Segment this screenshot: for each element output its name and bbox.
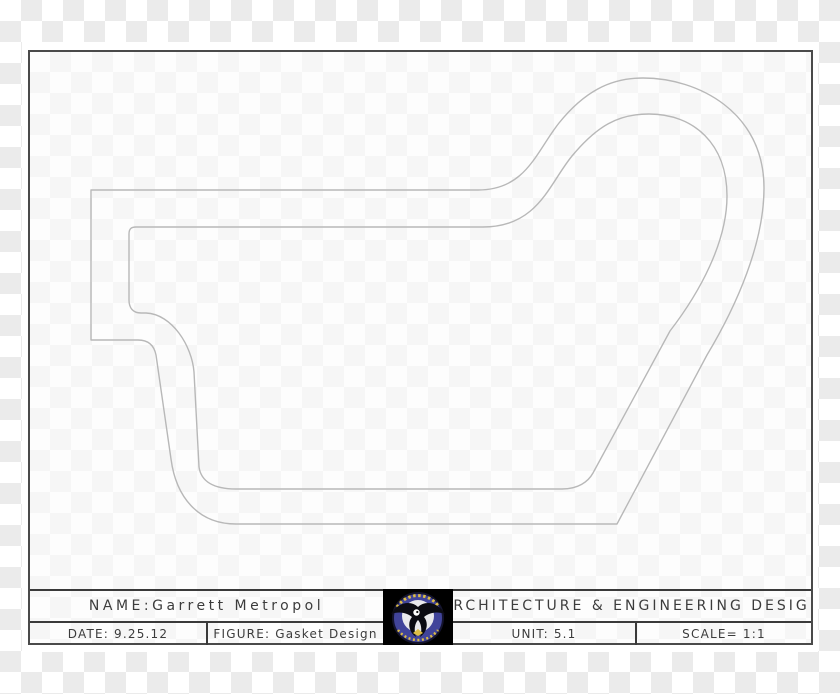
name-value: NAME:Garrett Metropol [89,598,324,614]
eagle-emblem-icon [383,589,453,645]
titleblock-name-cell: NAME:Garrett Metropol [30,589,383,621]
scale-value: SCALE= 1:1 [682,627,766,641]
transparency-checkerboard: NAME:Garrett Metropol ARCHITECTURE & ENG… [0,0,840,694]
titleblock-scale-cell: SCALE= 1:1 [635,621,811,645]
unit-value: UNIT: 5.1 [511,627,576,641]
logo-block [383,589,453,645]
sheet-border-frame [28,50,813,645]
date-value: DATE: 9.25.12 [68,627,168,641]
firm-value: ARCHITECTURE & ENGINEERING DESIGN [453,598,811,614]
titleblock-unit-cell: UNIT: 5.1 [453,621,635,645]
titleblock-date-cell: DATE: 9.25.12 [30,621,206,645]
titleblock-firm-cell: ARCHITECTURE & ENGINEERING DESIGN [453,589,811,621]
figure-value: FIGURE: Gasket Design [213,627,377,641]
titleblock-figure-cell: FIGURE: Gasket Design [206,621,383,645]
